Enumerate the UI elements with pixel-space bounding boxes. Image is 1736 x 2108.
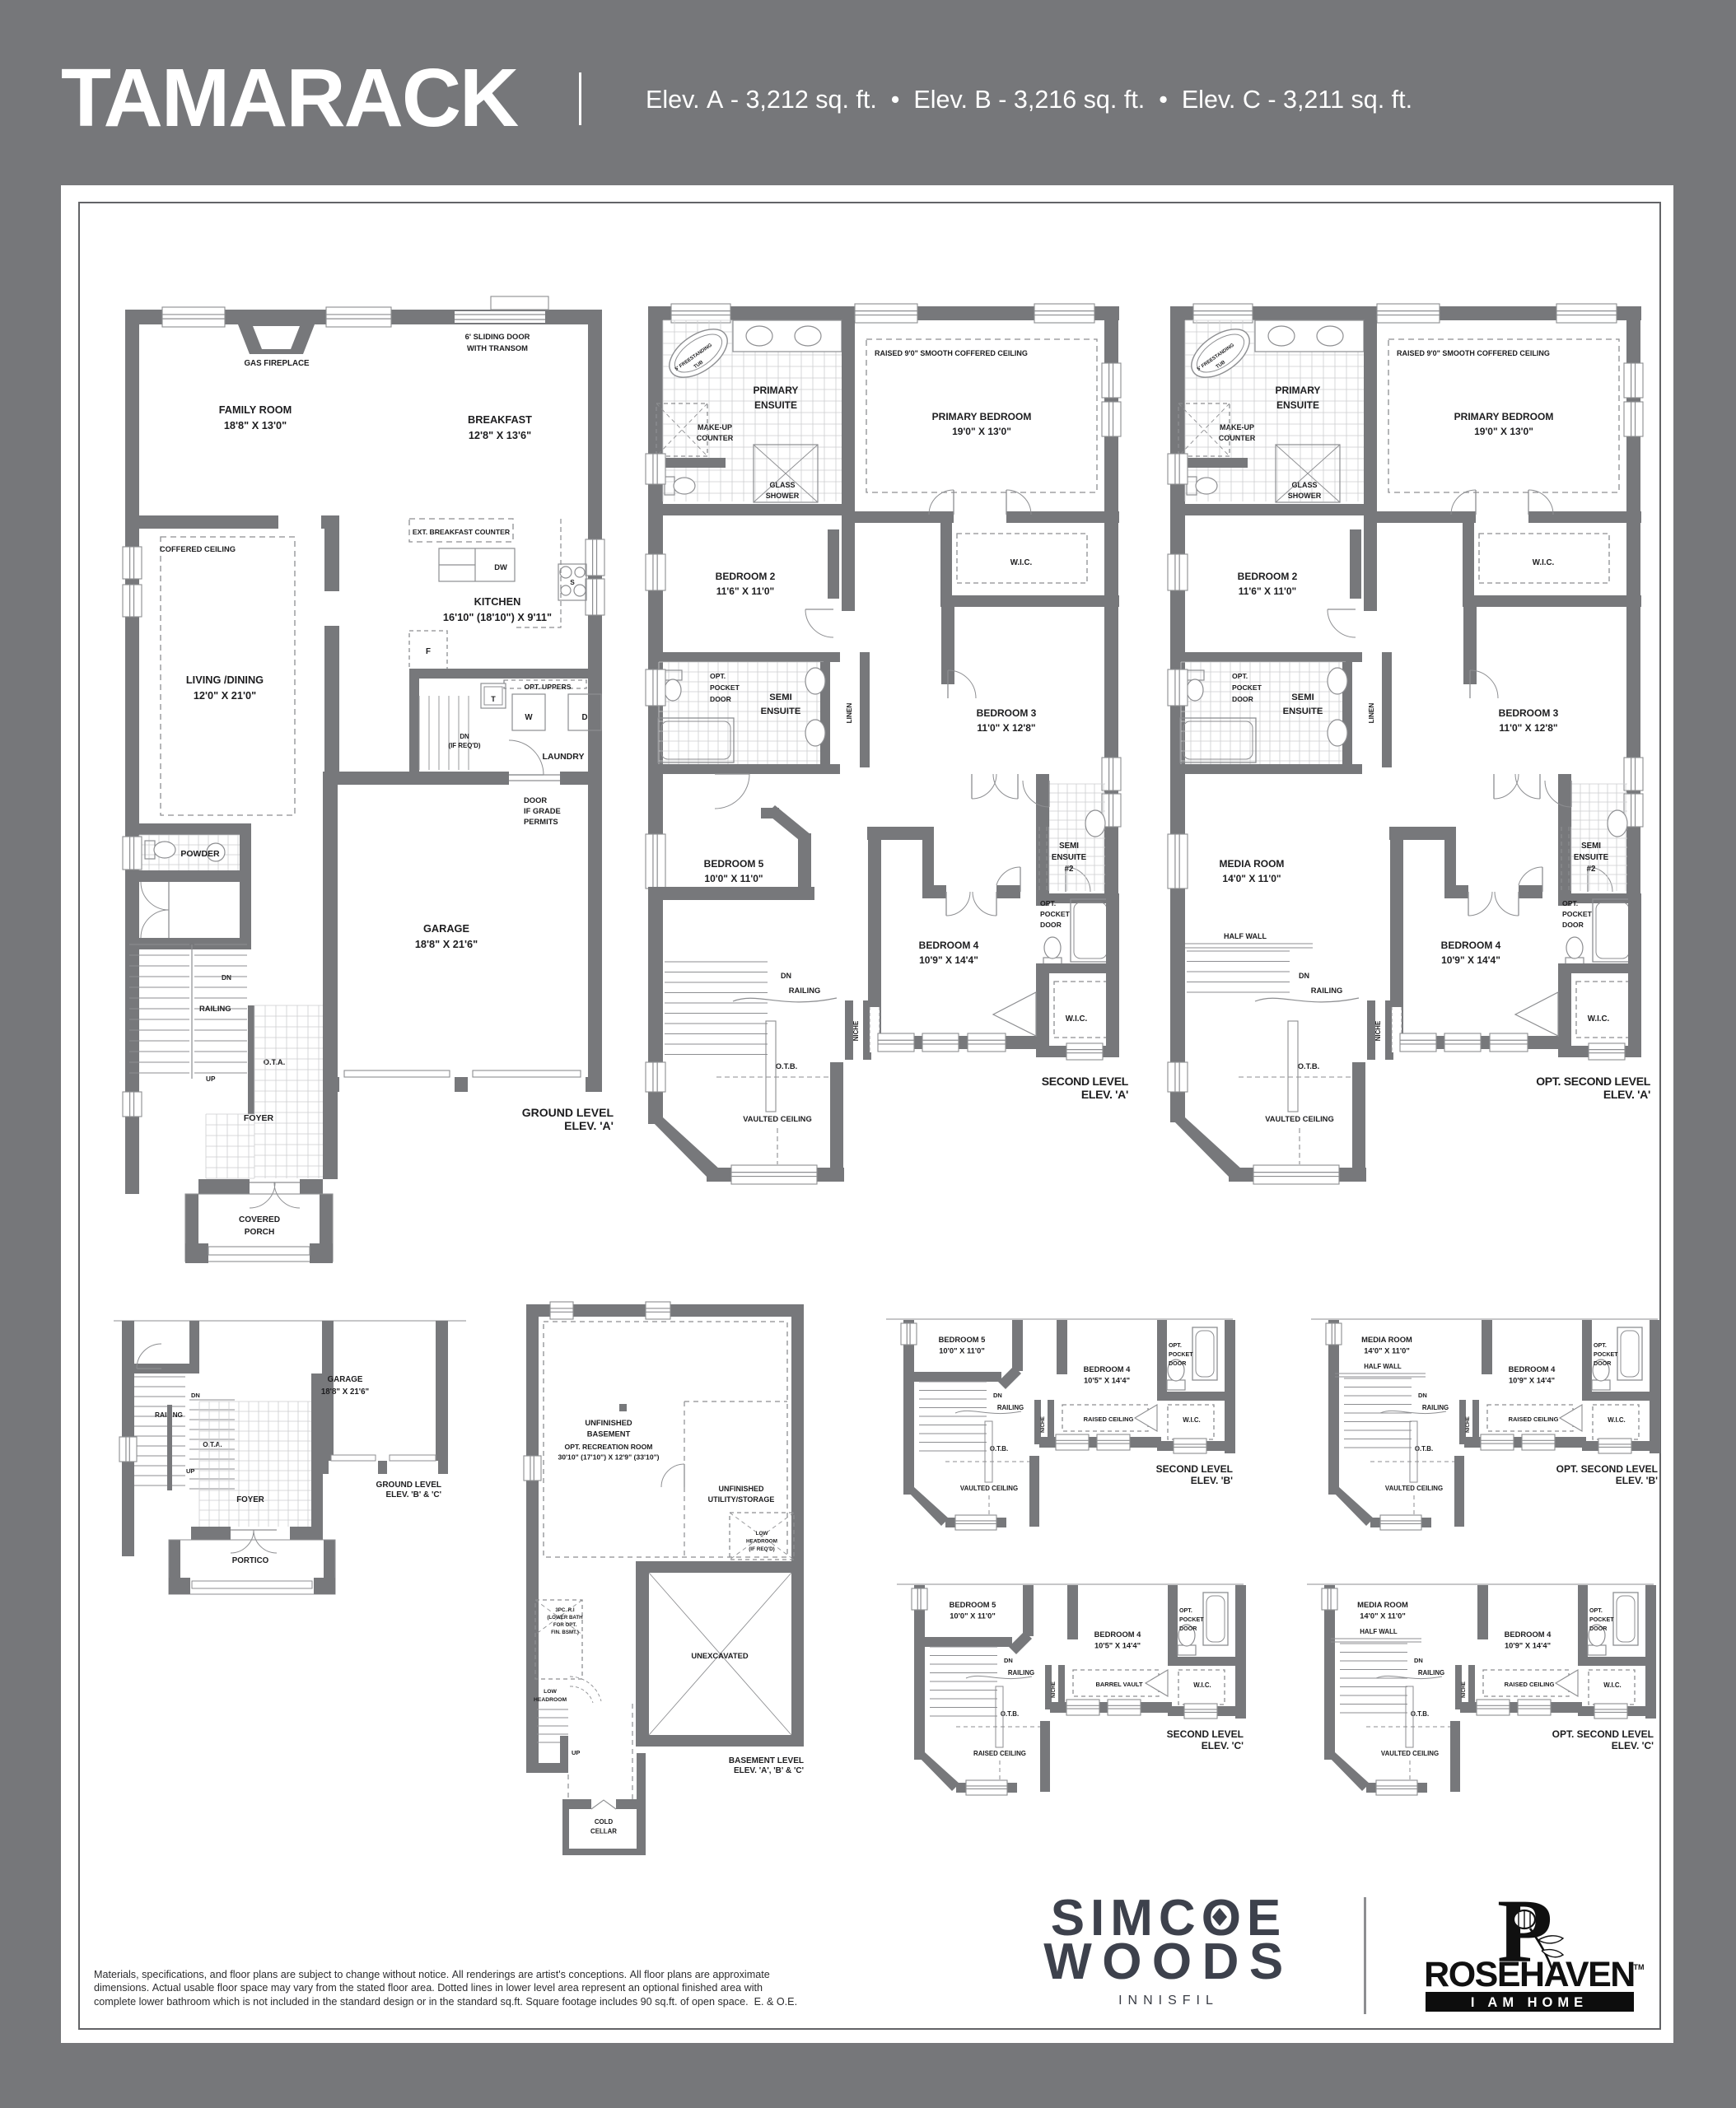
svg-text:DOOR: DOOR — [524, 796, 547, 804]
svg-text:FAMILY ROOM: FAMILY ROOM — [219, 403, 292, 416]
svg-text:O.T.B.: O.T.B. — [1298, 1062, 1320, 1070]
svg-text:12'0" X 21'0": 12'0" X 21'0" — [194, 689, 256, 702]
svg-text:OPT. SECOND LEVEL: OPT. SECOND LEVEL — [1556, 1463, 1658, 1475]
svg-text:F: F — [426, 647, 431, 656]
svg-text:OPT.: OPT. — [1594, 1342, 1607, 1349]
svg-text:16'10" (18'10") X 9'11": 16'10" (18'10") X 9'11" — [443, 611, 552, 623]
svg-text:RAISED CEILING: RAISED CEILING — [1505, 1681, 1555, 1688]
svg-text:SHOWER: SHOWER — [766, 492, 800, 500]
svg-text:OPT.: OPT. — [1169, 1342, 1182, 1349]
svg-text:RAILING: RAILING — [1418, 1669, 1444, 1677]
svg-text:SECOND LEVEL: SECOND LEVEL — [1042, 1075, 1129, 1088]
svg-text:GROUND LEVEL: GROUND LEVEL — [376, 1481, 441, 1490]
svg-text:OPT. UPPERS: OPT. UPPERS — [525, 683, 572, 691]
svg-text:19'0" X 13'0": 19'0" X 13'0" — [952, 426, 1011, 437]
svg-text:VAULTED CEILING: VAULTED CEILING — [1265, 1115, 1334, 1123]
svg-text:#2: #2 — [1587, 865, 1596, 874]
svg-text:PRIMARY BEDROOM: PRIMARY BEDROOM — [1454, 411, 1554, 422]
svg-text:14'0" X 11'0": 14'0" X 11'0" — [1360, 1612, 1406, 1621]
svg-text:BEDROOM 4: BEDROOM 4 — [1505, 1630, 1552, 1639]
svg-text:ENSUITE: ENSUITE — [1283, 707, 1323, 716]
svg-text:PRIMARY: PRIMARY — [1276, 385, 1321, 396]
svg-text:HEADROOM: HEADROOM — [534, 1697, 567, 1703]
svg-text:VAULTED CEILING: VAULTED CEILING — [1381, 1750, 1439, 1757]
svg-text:10'9" X 14'4": 10'9" X 14'4" — [1505, 1642, 1551, 1650]
svg-text:NICHE: NICHE — [852, 1021, 860, 1042]
svg-text:BASEMENT: BASEMENT — [587, 1430, 631, 1439]
svg-text:10'9" X 14'4": 10'9" X 14'4" — [919, 954, 978, 966]
svg-text:PORCH: PORCH — [245, 1228, 275, 1237]
svg-text:UTILITY/STORAGE: UTILITY/STORAGE — [708, 1495, 775, 1504]
svg-text:NICHE: NICHE — [1465, 1416, 1471, 1433]
svg-text:ENSUITE: ENSUITE — [1574, 853, 1609, 862]
svg-text:GAS FIREPLACE: GAS FIREPLACE — [244, 359, 310, 368]
svg-text:18'8" X 21'6": 18'8" X 21'6" — [415, 938, 478, 950]
svg-text:BEDROOM 5: BEDROOM 5 — [704, 858, 764, 870]
svg-text:SEMI: SEMI — [1291, 693, 1314, 702]
svg-text:ENSUITE: ENSUITE — [1276, 399, 1319, 411]
svg-text:ELEV. 'C': ELEV. 'C' — [1612, 1740, 1654, 1751]
svg-text:BEDROOM 3: BEDROOM 3 — [1499, 707, 1559, 719]
svg-text:DN: DN — [1414, 1657, 1423, 1664]
svg-text:BEDROOM 2: BEDROOM 2 — [716, 571, 776, 582]
svg-text:KITCHEN: KITCHEN — [474, 595, 521, 608]
svg-text:RAILING: RAILING — [1008, 1669, 1034, 1677]
svg-text:VAULTED CEILING: VAULTED CEILING — [1385, 1485, 1443, 1492]
svg-text:W.I.C.: W.I.C. — [1193, 1681, 1211, 1689]
svg-text:11'0" X 12'8": 11'0" X 12'8" — [1499, 722, 1557, 734]
svg-text:MEDIA ROOM: MEDIA ROOM — [1357, 1601, 1408, 1609]
svg-text:W.I.C.: W.I.C. — [1603, 1681, 1621, 1689]
svg-text:DN: DN — [781, 972, 791, 980]
svg-text:RAILING: RAILING — [1422, 1404, 1449, 1411]
svg-text:BREAKFAST: BREAKFAST — [468, 413, 532, 426]
svg-text:SHOWER: SHOWER — [1288, 492, 1322, 500]
svg-text:11'0" X 12'8": 11'0" X 12'8" — [977, 722, 1035, 734]
svg-text:19'0" X 13'0": 19'0" X 13'0" — [1474, 426, 1533, 437]
svg-text:POWDER: POWDER — [180, 849, 220, 859]
svg-text:30'10" (17'10") X 12'9" (33'10: 30'10" (17'10") X 12'9" (33'10") — [558, 1453, 659, 1462]
svg-text:POCKET: POCKET — [1169, 1351, 1193, 1358]
svg-text:ELEV. 'A': ELEV. 'A' — [564, 1119, 614, 1132]
svg-text:VAULTED CEILING: VAULTED CEILING — [960, 1485, 1018, 1492]
svg-text:10'5" X 14'4": 10'5" X 14'4" — [1094, 1642, 1141, 1650]
svg-text:COFFERED CEILING: COFFERED CEILING — [160, 545, 236, 553]
svg-text:RAILING: RAILING — [789, 986, 821, 995]
svg-text:INNISFIL: INNISFIL — [1118, 1994, 1219, 2008]
svg-text:LINEN: LINEN — [846, 703, 853, 724]
svg-text:DN: DN — [222, 974, 231, 982]
svg-text:14'0" X 11'0": 14'0" X 11'0" — [1222, 873, 1281, 884]
svg-text:GARAGE: GARAGE — [423, 922, 469, 935]
svg-text:O.T.A.: O.T.A. — [264, 1058, 286, 1066]
svg-text:DOOR: DOOR — [1562, 921, 1584, 929]
svg-text:OPT.: OPT. — [1232, 672, 1248, 680]
svg-text:NICHE: NICHE — [1051, 1681, 1057, 1698]
svg-text:W.I.C.: W.I.C. — [1608, 1416, 1625, 1424]
svg-text:LOW: LOW — [756, 1531, 769, 1537]
svg-text:11'6" X 11'0": 11'6" X 11'0" — [716, 585, 774, 597]
svg-text:DOOR: DOOR — [1232, 695, 1254, 703]
svg-text:DOOR: DOOR — [710, 695, 732, 703]
svg-text:UNEXCAVATED: UNEXCAVATED — [691, 1652, 749, 1660]
svg-text:DN: DN — [460, 733, 469, 740]
svg-text:10'9" X 14'4": 10'9" X 14'4" — [1441, 954, 1500, 966]
svg-text:OPT.: OPT. — [710, 672, 726, 680]
svg-text:BEDROOM 5: BEDROOM 5 — [950, 1601, 996, 1609]
svg-text:DN: DN — [1418, 1392, 1427, 1399]
svg-text:DOOR: DOOR — [1179, 1625, 1197, 1632]
svg-text:COVERED: COVERED — [239, 1215, 280, 1224]
svg-text:UP: UP — [572, 1749, 580, 1756]
svg-text:ROSEHAVEN: ROSEHAVEN — [1424, 1955, 1635, 1994]
svg-text:FOYER: FOYER — [236, 1495, 264, 1504]
svg-text:UNFINISHED: UNFINISHED — [585, 1419, 632, 1427]
svg-text:RAILING: RAILING — [1311, 986, 1343, 995]
svg-text:(IF REQ'D): (IF REQ'D) — [749, 1546, 775, 1552]
svg-text:#2: #2 — [1065, 865, 1074, 874]
svg-text:GROUND LEVEL: GROUND LEVEL — [522, 1106, 614, 1119]
svg-text:O.T.B.: O.T.B. — [776, 1062, 798, 1070]
svg-text:DOOR: DOOR — [1040, 921, 1062, 929]
svg-text:NICHE: NICHE — [1461, 1681, 1467, 1698]
svg-text:POCKET: POCKET — [1040, 910, 1071, 918]
svg-text:BEDROOM 5: BEDROOM 5 — [939, 1336, 986, 1344]
svg-text:FOYER: FOYER — [244, 1113, 274, 1123]
svg-text:COUNTER: COUNTER — [1219, 434, 1256, 442]
svg-text:SEMI: SEMI — [1581, 842, 1601, 851]
svg-text:W.I.C.: W.I.C. — [1588, 1014, 1610, 1024]
svg-text:RAISED 9'0" SMOOTH COFFERED CE: RAISED 9'0" SMOOTH COFFERED CEILING — [1397, 349, 1550, 357]
svg-text:COLD: COLD — [595, 1818, 614, 1826]
svg-text:UP: UP — [186, 1467, 194, 1475]
svg-text:SEMI: SEMI — [1059, 842, 1079, 851]
svg-text:POCKET: POCKET — [1179, 1616, 1204, 1623]
svg-text:BEDROOM 4: BEDROOM 4 — [1441, 940, 1501, 951]
svg-text:3PC. R.I: 3PC. R.I — [555, 1607, 574, 1613]
svg-text:ENSUITE: ENSUITE — [1052, 853, 1087, 862]
svg-text:ELEV. 'A', 'B' & 'C': ELEV. 'A', 'B' & 'C' — [734, 1766, 804, 1775]
svg-text:GLASS: GLASS — [1291, 481, 1317, 489]
svg-text:DN: DN — [191, 1392, 200, 1399]
svg-text:GLASS: GLASS — [769, 481, 795, 489]
svg-text:GARAGE: GARAGE — [328, 1375, 363, 1384]
svg-text:LOW: LOW — [544, 1689, 557, 1695]
svg-text:RAISED CEILING: RAISED CEILING — [973, 1750, 1026, 1757]
svg-text:FIN. BSMT.): FIN. BSMT.) — [551, 1630, 579, 1635]
svg-text:W.I.C.: W.I.C. — [1066, 1014, 1088, 1024]
svg-text:SEMI: SEMI — [769, 693, 792, 702]
svg-text:ENSUITE: ENSUITE — [761, 707, 801, 716]
svg-text:COUNTER: COUNTER — [697, 434, 734, 442]
svg-text:ELEV. 'B' & 'C': ELEV. 'B' & 'C' — [386, 1490, 442, 1499]
svg-text:W.I.C.: W.I.C. — [1010, 558, 1033, 567]
svg-text:OPT.: OPT. — [1562, 899, 1578, 907]
svg-text:POCKET: POCKET — [1232, 683, 1262, 692]
svg-text:10'0" X 11'0": 10'0" X 11'0" — [950, 1612, 996, 1621]
svg-text:BASEMENT LEVEL: BASEMENT LEVEL — [729, 1756, 804, 1765]
svg-text:RAISED CEILING: RAISED CEILING — [1509, 1415, 1559, 1423]
svg-text:RAILING: RAILING — [997, 1404, 1024, 1411]
svg-text:HALF WALL: HALF WALL — [1224, 932, 1267, 940]
svg-text:6' SLIDING DOOR: 6' SLIDING DOOR — [465, 333, 530, 341]
svg-text:MAKE-UP: MAKE-UP — [698, 423, 732, 431]
svg-text:BEDROOM 3: BEDROOM 3 — [977, 707, 1037, 719]
svg-text:ELEV. 'A': ELEV. 'A' — [1603, 1088, 1650, 1101]
svg-text:MAKE-UP: MAKE-UP — [1220, 423, 1254, 431]
svg-text:DOOR: DOOR — [1594, 1360, 1611, 1367]
svg-text:PRIMARY BEDROOM: PRIMARY BEDROOM — [932, 411, 1032, 422]
svg-text:OPT. RECREATION ROOM: OPT. RECREATION ROOM — [565, 1443, 653, 1451]
svg-text:10'9" X 14'4": 10'9" X 14'4" — [1509, 1377, 1555, 1385]
svg-text:MEDIA ROOM: MEDIA ROOM — [1220, 858, 1285, 870]
svg-text:SECOND LEVEL: SECOND LEVEL — [1167, 1728, 1244, 1740]
svg-text:(LOWER BATH: (LOWER BATH — [547, 1615, 583, 1621]
svg-text:WITH TRANSOM: WITH TRANSOM — [467, 344, 528, 352]
svg-text:RAILING: RAILING — [199, 1005, 231, 1013]
svg-text:TM: TM — [1634, 1963, 1645, 1971]
svg-text:BEDROOM 4: BEDROOM 4 — [1094, 1630, 1142, 1639]
svg-text:VAULTED CEILING: VAULTED CEILING — [743, 1115, 812, 1123]
svg-text:SECOND LEVEL: SECOND LEVEL — [1156, 1463, 1233, 1475]
svg-text:IF GRADE: IF GRADE — [524, 807, 561, 815]
svg-text:PERMITS: PERMITS — [524, 818, 558, 826]
svg-text:POCKET: POCKET — [1594, 1351, 1618, 1358]
svg-text:LINEN: LINEN — [1368, 703, 1375, 724]
svg-text:10'0" X 11'0": 10'0" X 11'0" — [939, 1347, 985, 1355]
svg-text:W: W — [525, 713, 533, 722]
svg-text:NICHE: NICHE — [1374, 1021, 1382, 1042]
svg-text:DOOR: DOOR — [1169, 1360, 1186, 1367]
svg-text:W.I.C.: W.I.C. — [1533, 558, 1555, 567]
svg-text:ELEV. 'C': ELEV. 'C' — [1202, 1740, 1244, 1751]
svg-text:S: S — [570, 579, 575, 586]
svg-text:DN: DN — [993, 1392, 1002, 1399]
svg-text:PRIMARY: PRIMARY — [754, 385, 799, 396]
svg-text:RAISED CEILING: RAISED CEILING — [1084, 1415, 1134, 1423]
svg-text:D: D — [581, 713, 587, 722]
svg-text:10'5" X 14'4": 10'5" X 14'4" — [1084, 1377, 1130, 1385]
svg-text:ELEV. 'B': ELEV. 'B' — [1191, 1475, 1233, 1486]
svg-text:OPT. SECOND LEVEL: OPT. SECOND LEVEL — [1536, 1075, 1651, 1088]
svg-text:(IF REQ'D): (IF REQ'D) — [448, 742, 480, 749]
svg-text:14'0" X 11'0": 14'0" X 11'0" — [1364, 1347, 1410, 1355]
svg-text:POCKET: POCKET — [1589, 1616, 1614, 1623]
svg-text:HALF WALL: HALF WALL — [1360, 1628, 1398, 1635]
svg-text:W.I.C.: W.I.C. — [1183, 1416, 1200, 1424]
svg-text:I AM HOME: I AM HOME — [1471, 1995, 1588, 2010]
svg-text:HALF WALL: HALF WALL — [1364, 1363, 1402, 1370]
svg-text:LAUNDRY: LAUNDRY — [543, 752, 585, 762]
svg-text:POCKET: POCKET — [1562, 910, 1593, 918]
svg-text:T: T — [491, 695, 496, 703]
svg-text:UNFINISHED: UNFINISHED — [718, 1485, 764, 1493]
svg-text:12'8" X 13'6": 12'8" X 13'6" — [469, 429, 531, 441]
svg-text:OPT.: OPT. — [1040, 899, 1056, 907]
svg-text:DN: DN — [1299, 972, 1309, 980]
svg-text:WOODS: WOODS — [1043, 1933, 1294, 1990]
svg-text:PORTICO: PORTICO — [232, 1556, 269, 1565]
svg-text:LIVING /DINING: LIVING /DINING — [186, 674, 264, 686]
svg-text:11'6" X 11'0": 11'6" X 11'0" — [1239, 585, 1296, 597]
svg-text:FOR OPT.: FOR OPT. — [553, 1622, 577, 1628]
svg-text:ENSUITE: ENSUITE — [754, 399, 797, 411]
svg-text:10'0" X 11'0": 10'0" X 11'0" — [704, 873, 763, 884]
svg-text:ELEV. 'B': ELEV. 'B' — [1616, 1475, 1658, 1486]
svg-text:UP: UP — [206, 1075, 216, 1083]
svg-text:EXT. BREAKFAST COUNTER: EXT. BREAKFAST COUNTER — [413, 528, 511, 536]
svg-text:CELLAR: CELLAR — [590, 1828, 617, 1835]
svg-text:DOOR: DOOR — [1589, 1625, 1607, 1632]
svg-text:18'8" X 21'6": 18'8" X 21'6" — [321, 1387, 369, 1397]
svg-text:RAISED 9'0" SMOOTH COFFERED CE: RAISED 9'0" SMOOTH COFFERED CEILING — [875, 349, 1028, 357]
svg-text:DN: DN — [1004, 1657, 1013, 1664]
svg-text:MEDIA ROOM: MEDIA ROOM — [1361, 1336, 1412, 1344]
svg-text:18'8" X 13'0": 18'8" X 13'0" — [224, 419, 287, 431]
svg-text:OPT. SECOND LEVEL: OPT. SECOND LEVEL — [1552, 1728, 1654, 1740]
svg-text:BARREL VAULT: BARREL VAULT — [1095, 1681, 1143, 1688]
svg-text:OPT.: OPT. — [1589, 1607, 1603, 1614]
svg-text:HEADROOM: HEADROOM — [746, 1539, 777, 1545]
svg-text:BEDROOM 2: BEDROOM 2 — [1238, 571, 1298, 582]
svg-text:POCKET: POCKET — [710, 683, 740, 692]
svg-text:DW: DW — [494, 563, 507, 571]
svg-text:NICHE: NICHE — [1040, 1416, 1046, 1433]
svg-text:BEDROOM 4: BEDROOM 4 — [1509, 1365, 1556, 1373]
svg-text:OPT.: OPT. — [1179, 1607, 1192, 1614]
svg-text:ELEV. 'A': ELEV. 'A' — [1081, 1088, 1128, 1101]
svg-text:BEDROOM 4: BEDROOM 4 — [919, 940, 979, 951]
svg-text:BEDROOM 4: BEDROOM 4 — [1084, 1365, 1132, 1373]
